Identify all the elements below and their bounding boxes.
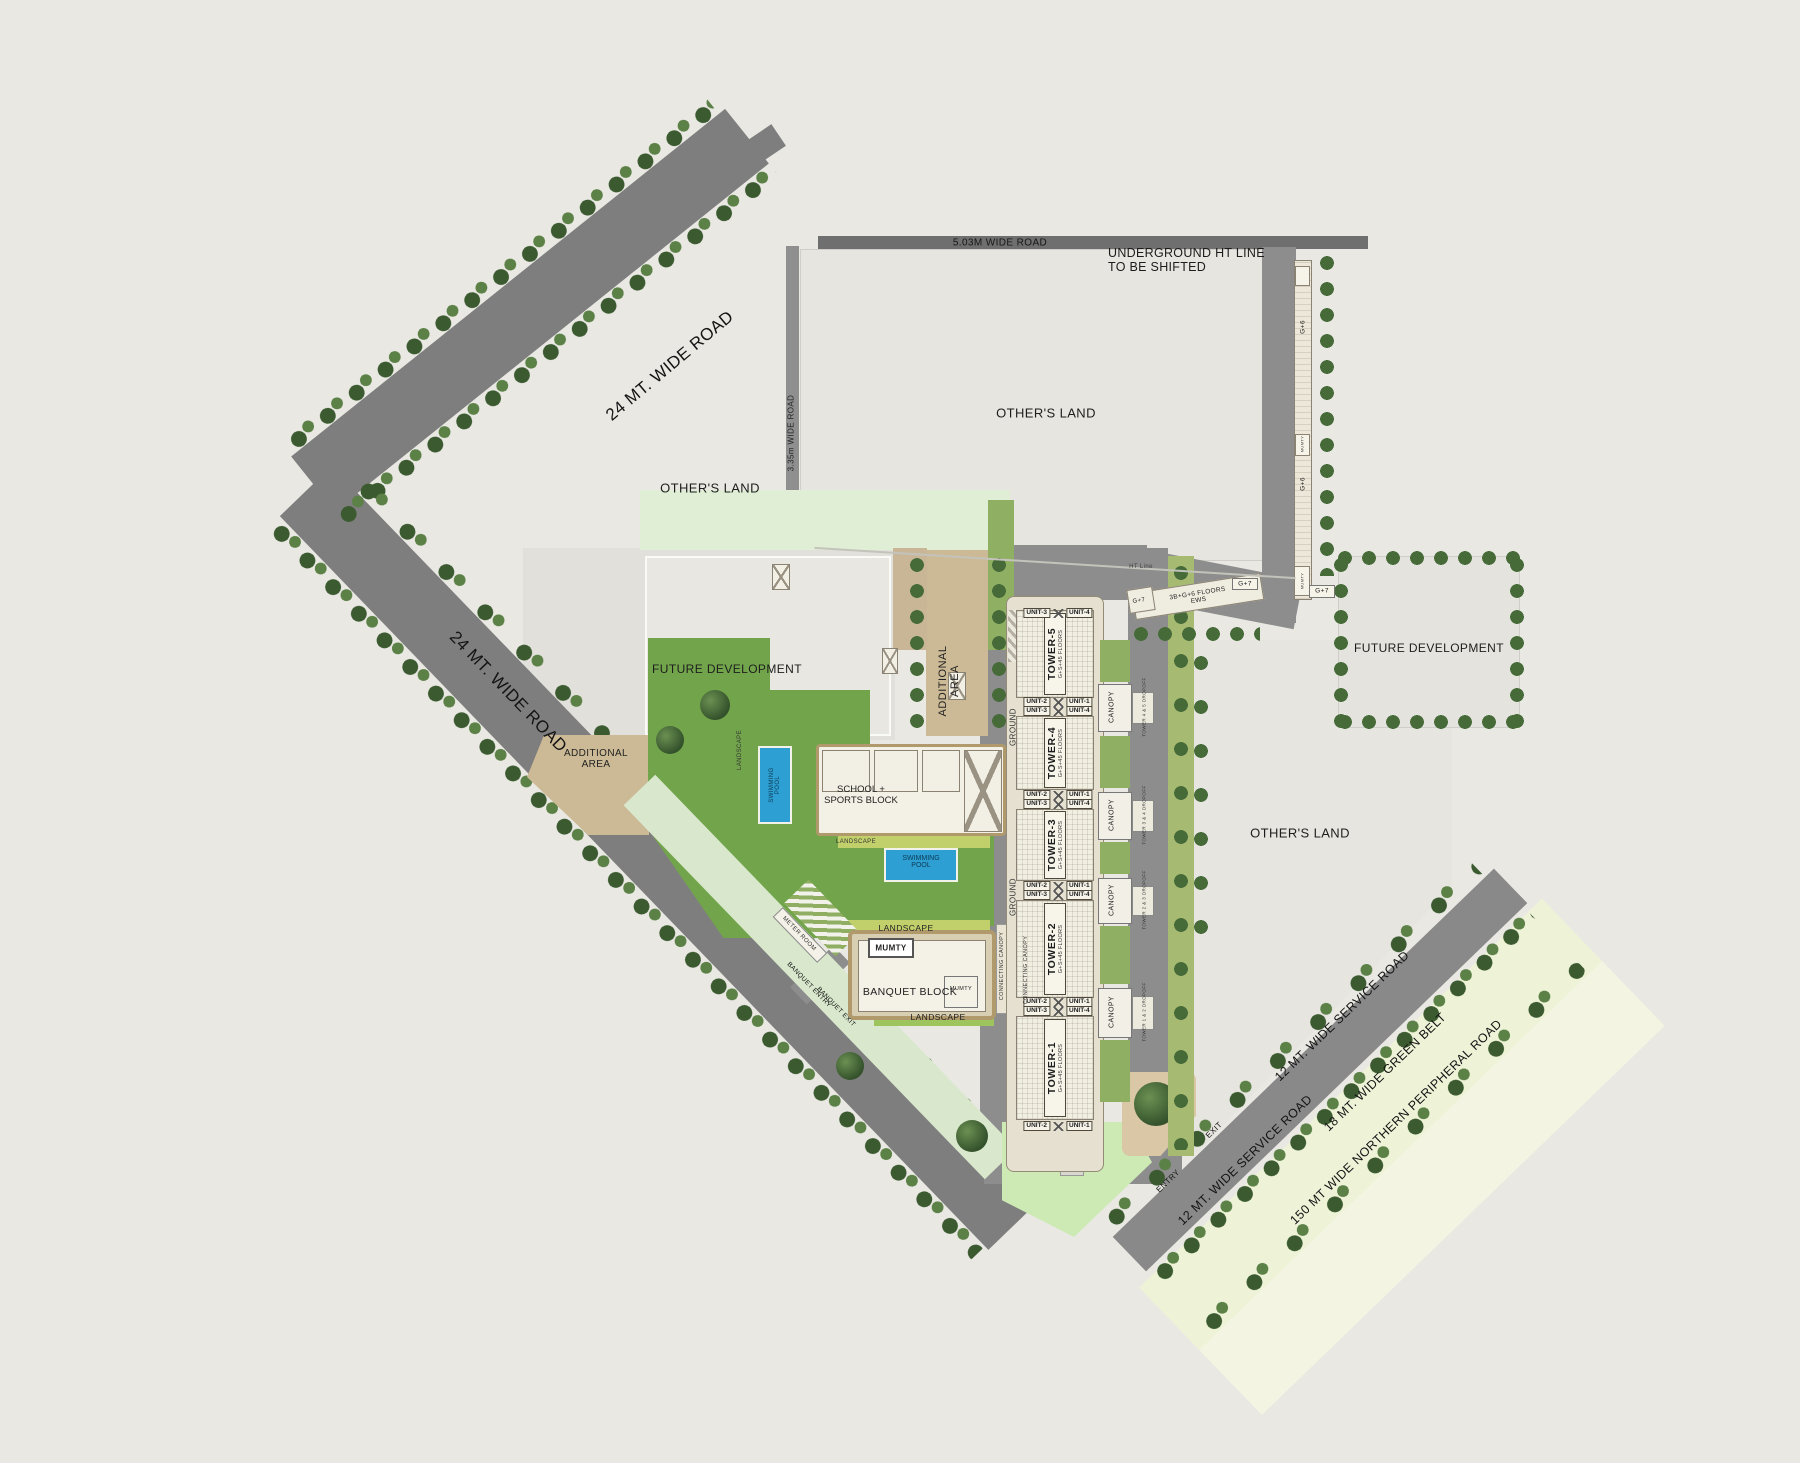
tower-4-label: TOWER-4: [1046, 727, 1058, 779]
connecting-canopy-label-1: CONNECTING CANOPY: [999, 932, 1005, 1001]
dropoff-label-2: TOWER 3 & 4 DROPOFF: [1142, 785, 1147, 844]
ground-label-1: GROUND: [1009, 708, 1018, 746]
school-building-4: [964, 750, 1002, 832]
swimming-pool-horizontal-label: SWIMMING POOL: [902, 855, 939, 869]
unit-label: UNIT-3: [1023, 799, 1050, 809]
tower-4-core: TOWER-4 G+S+45 FLOORS: [1044, 718, 1066, 788]
tower-1-label: TOWER-1: [1046, 1042, 1058, 1094]
ground-label-2: GROUND: [1009, 878, 1018, 916]
additional-area-right-label: ADDITIONAL AREA: [937, 645, 961, 716]
tower-4-footprint: TOWER-4 G+S+45 FLOORS: [1016, 716, 1094, 790]
tree-col-additional-left: [906, 552, 928, 736]
note-underground-line1: UNDERGROUND HT LINE: [1108, 246, 1265, 260]
additional-left-line1: ADDITIONAL: [564, 748, 628, 759]
tower-3-core: TOWER-3 G+S+45 FLOORS: [1044, 811, 1066, 879]
unit-row-top: UNIT-3 UNIT-4: [1023, 608, 1092, 618]
others-land-label-left: OTHER'S LAND: [660, 481, 760, 496]
additional-right-line2: AREA: [949, 645, 961, 716]
g6-label-1: G+6: [1300, 320, 1307, 334]
road-label-3-35m: 3.35m WIDE ROAD: [787, 395, 796, 472]
school-label: SCHOOL + SPORTS BLOCK: [824, 784, 898, 806]
road-ews-strip: [1262, 247, 1296, 623]
ews-block-label-2: EWS: [1190, 595, 1207, 604]
school-label-line1: SCHOOL +: [824, 784, 898, 795]
tower-2-label: TOWER-2: [1046, 923, 1058, 975]
canopy-label-1: CANOPY: [1109, 691, 1116, 723]
additional-area-left-label: ADDITIONAL AREA: [564, 748, 628, 770]
additional-left-line2: AREA: [564, 759, 628, 770]
core-cross-icon: [1053, 707, 1063, 716]
road-24mt-nw: [291, 109, 769, 511]
canopy-gap-green-3: [1100, 842, 1130, 874]
pool-h-line2: POOL: [902, 862, 939, 869]
tower-4-floors: G+S+45 FLOORS: [1058, 729, 1064, 778]
road-label-24mt-nw: 24 MT. WIDE ROAD: [602, 307, 738, 425]
others-land-label-top: OTHER'S LAND: [996, 406, 1096, 421]
core-cross-icon: [1053, 800, 1063, 809]
strip-mumty-box-1: [1295, 266, 1310, 286]
dropoff-label-3: TOWER 2 & 3 DROPOFF: [1142, 870, 1147, 929]
note-underground-ht: UNDERGROUND HT LINE TO BE SHIFTED: [1108, 246, 1265, 274]
core-cross-icon: [1053, 1007, 1063, 1016]
canopy-label-3: CANOPY: [1109, 884, 1116, 916]
unit-label: UNIT-4: [1066, 1006, 1093, 1016]
pool-v-line2: POOL: [775, 767, 781, 802]
tower-5-label: TOWER-5: [1046, 628, 1058, 680]
landscape-label-mid: LANDSCAPE: [878, 923, 933, 933]
tree-path-1: [956, 1120, 988, 1152]
swimming-pool-vertical-label: SWIMMING POOL: [769, 767, 781, 802]
future-dev-label-left: FUTURE DEVELOPMENT: [652, 662, 802, 676]
canopy-gap-green-5: [1100, 1040, 1130, 1102]
unit-label: UNIT-4: [1066, 706, 1093, 716]
canopy-label-4: CANOPY: [1109, 996, 1116, 1028]
tree-col-strip-east: [1316, 250, 1338, 576]
landscape-label-top: LANDSCAPE: [836, 839, 876, 845]
unit-label: UNIT-1: [1066, 1121, 1093, 1131]
tree-lawn-1: [700, 690, 730, 720]
unit-row-j4b: UNIT-3 UNIT-4: [1023, 1006, 1092, 1016]
connecting-canopy-label-2: CONNECTING CANOPY: [1023, 936, 1029, 1005]
unit-row-bottom: UNIT-2 UNIT-1: [1023, 1121, 1092, 1131]
dropoff-label-1: TOWER 4 & 5 DROPOFF: [1142, 677, 1147, 736]
tree-col-right-parcel-west: [1190, 650, 1212, 950]
school-label-line2: SPORTS BLOCK: [824, 795, 898, 806]
tree-lawn-2: [656, 726, 684, 754]
tree-border-future-right-left: [1330, 552, 1352, 728]
unit-label: UNIT-4: [1066, 608, 1093, 618]
unit-label: UNIT-4: [1066, 799, 1093, 809]
dropoff-label-4: TOWER 1 & 2 DROPOFF: [1142, 982, 1147, 1041]
note-underground-line2: TO BE SHIFTED: [1108, 260, 1265, 274]
tower-1-floors: G+S+45 FLOORS: [1058, 1044, 1064, 1093]
tree-border-future-right-bottom: [1334, 712, 1526, 732]
tower-1-footprint: TOWER-1 G+S+45 FLOORS: [1016, 1016, 1094, 1120]
unit-row-j3b: UNIT-3 UNIT-4: [1023, 890, 1092, 900]
canopy-label-2: CANOPY: [1109, 799, 1116, 831]
tower-5-core: TOWER-5 G+S+45 FLOORS: [1044, 613, 1066, 695]
strip-building-g6: [1294, 260, 1312, 600]
mumty-label-banquet: MUMTY: [875, 944, 906, 953]
core-cross-icon: [1053, 891, 1063, 900]
tree-row-below-ews: [1130, 624, 1260, 644]
tower-3-label: TOWER-3: [1046, 819, 1058, 871]
road-label-5-03m: 5.03M WIDE ROAD: [953, 238, 1047, 249]
utility-box-1: [772, 564, 790, 590]
g7-label-mid: G+7: [1238, 581, 1252, 588]
tree-path-2: [836, 1052, 864, 1080]
others-land-label-right: OTHER'S LAND: [1250, 826, 1350, 841]
tower-3-footprint: TOWER-3 G+S+45 FLOORS: [1016, 809, 1094, 881]
mumty-label-strip-2: MUMTY: [1300, 573, 1305, 590]
pool-h-line1: SWIMMING: [902, 855, 939, 862]
tower-5-footprint: TOWER-5 G+S+45 FLOORS: [1016, 610, 1094, 698]
core-cross-icon: [1053, 1122, 1063, 1131]
canopy-gap-green-1: [1100, 640, 1130, 682]
school-building-3: [922, 750, 960, 792]
utility-box-2: [882, 648, 898, 674]
pale-strip-north: [640, 490, 1010, 550]
landscape-label-vertical: LANDSCAPE: [737, 730, 743, 770]
unit-label: UNIT-3: [1023, 608, 1050, 618]
tower-2-core: TOWER-2 G+S+45 FLOORS: [1044, 903, 1066, 995]
tower-2-floors: G+S+45 FLOORS: [1058, 925, 1064, 974]
unit-label: UNIT-3: [1023, 706, 1050, 716]
core-cross-icon: [1053, 609, 1063, 618]
canopy-gap-green-4: [1100, 926, 1130, 984]
future-dev-label-right: FUTURE DEVELOPMENT: [1354, 641, 1504, 655]
unit-label: UNIT-3: [1023, 890, 1050, 900]
banquet-block-label: BANQUET BLOCK: [863, 986, 957, 998]
g7-label-right: G+7: [1315, 588, 1329, 595]
landscape-label-bottom: LANDSCAPE: [910, 1012, 965, 1022]
unit-label: UNIT-2: [1023, 1121, 1050, 1131]
tree-border-future-right-top: [1334, 548, 1526, 568]
ht-line-label: HT Line: [1129, 564, 1153, 570]
tree-col-east-of-towers: [1170, 560, 1192, 1150]
site-master-plan: TOWER-5 G+S+45 FLOORS TOWER-4 G+S+45 FLO…: [0, 0, 1800, 1463]
unit-label: UNIT-4: [1066, 890, 1093, 900]
g6-label-2: G+6: [1300, 477, 1307, 491]
canopy-gap-green-2: [1100, 736, 1130, 788]
unit-row-j1b: UNIT-3 UNIT-4: [1023, 706, 1092, 716]
additional-right-line1: ADDITIONAL: [937, 645, 949, 716]
tower-1-core: TOWER-1 G+S+45 FLOORS: [1044, 1019, 1066, 1117]
mumty-label-strip-1: MUMTY: [1300, 436, 1305, 453]
tree-border-future-right-right: [1506, 552, 1528, 728]
tower-5-floors: G+S+45 FLOORS: [1058, 630, 1064, 679]
unit-label: UNIT-3: [1023, 1006, 1050, 1016]
unit-row-j2b: UNIT-3 UNIT-4: [1023, 799, 1092, 809]
tower-3-floors: G+S+45 FLOORS: [1058, 821, 1064, 870]
